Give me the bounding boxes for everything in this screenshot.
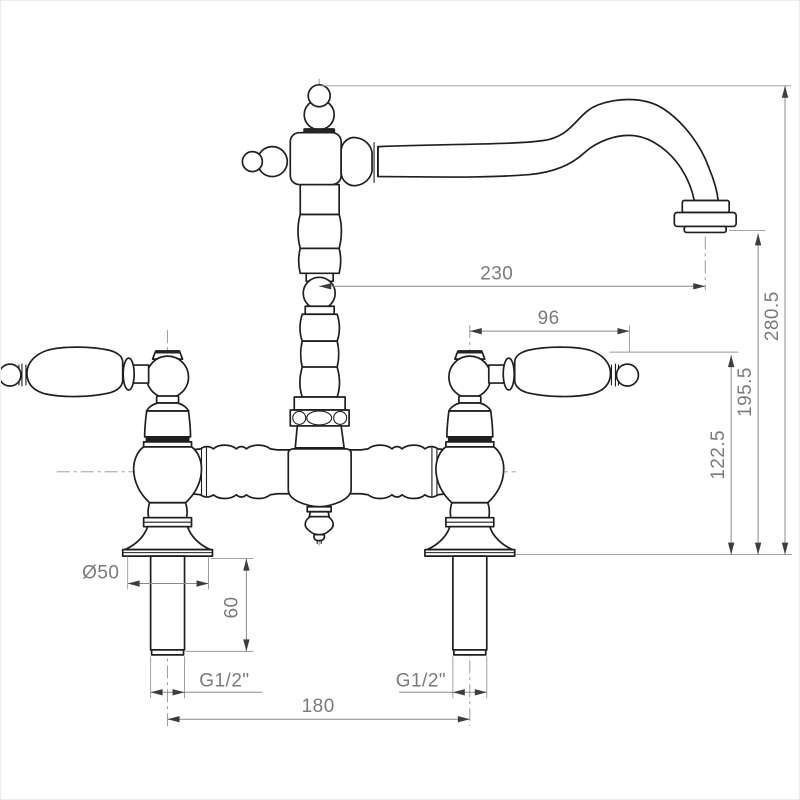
arm-collar: [341, 138, 372, 186]
dimension-hole-centres: 180: [168, 696, 470, 722]
dimension-spout-reach: 230: [319, 263, 705, 289]
spout-arm: [378, 100, 736, 233]
drop-finial: [305, 507, 333, 544]
bead-ring: [290, 410, 349, 426]
cross-body: [290, 133, 341, 185]
faucet-dimensional-drawing: 230 96 280.5 195.5 122.5 Ø50: [1, 1, 799, 799]
spout-column: [290, 185, 349, 448]
dimension-base-diameter: Ø50: [82, 563, 208, 587]
dim-label-left-thread: G1/2": [199, 670, 249, 691]
dimension-right-thread: G1/2": [396, 670, 487, 695]
dim-label-hole-centres: 180: [302, 696, 335, 717]
dim-label-handle-span: 96: [538, 308, 560, 329]
right-valve-and-handle: [425, 347, 638, 655]
bridge-junction: [288, 449, 351, 544]
dim-label-base-diameter: Ø50: [82, 563, 119, 584]
dimension-overall-height: 280.5: [762, 86, 788, 555]
left-knob-tip: [242, 152, 262, 172]
spout-head: [242, 85, 377, 186]
dim-label-right-thread: G1/2": [396, 670, 446, 691]
dimension-handle-span: 96: [470, 308, 630, 334]
shank-length-extension-lines: [186, 559, 254, 652]
dim-label-spout-outlet-height: 195.5: [735, 367, 756, 417]
column-ball: [303, 277, 335, 309]
finial-ball-small: [308, 85, 330, 107]
dim-label-overall-height: 280.5: [762, 291, 783, 341]
dimension-shank-length: 60: [221, 559, 249, 652]
technical-drawing-canvas: 230 96 280.5 195.5 122.5 Ø50: [0, 0, 800, 800]
dim-label-spout-reach: 230: [480, 263, 513, 284]
dimension-handle-height: 122.5: [708, 355, 734, 555]
dimension-spout-outlet-height: 195.5: [735, 233, 761, 554]
left-valve-and-handle: [1, 347, 212, 655]
aerator-outlet: [674, 201, 736, 233]
dim-label-shank-length: 60: [221, 596, 242, 618]
dim-label-handle-height: 122.5: [708, 430, 729, 480]
